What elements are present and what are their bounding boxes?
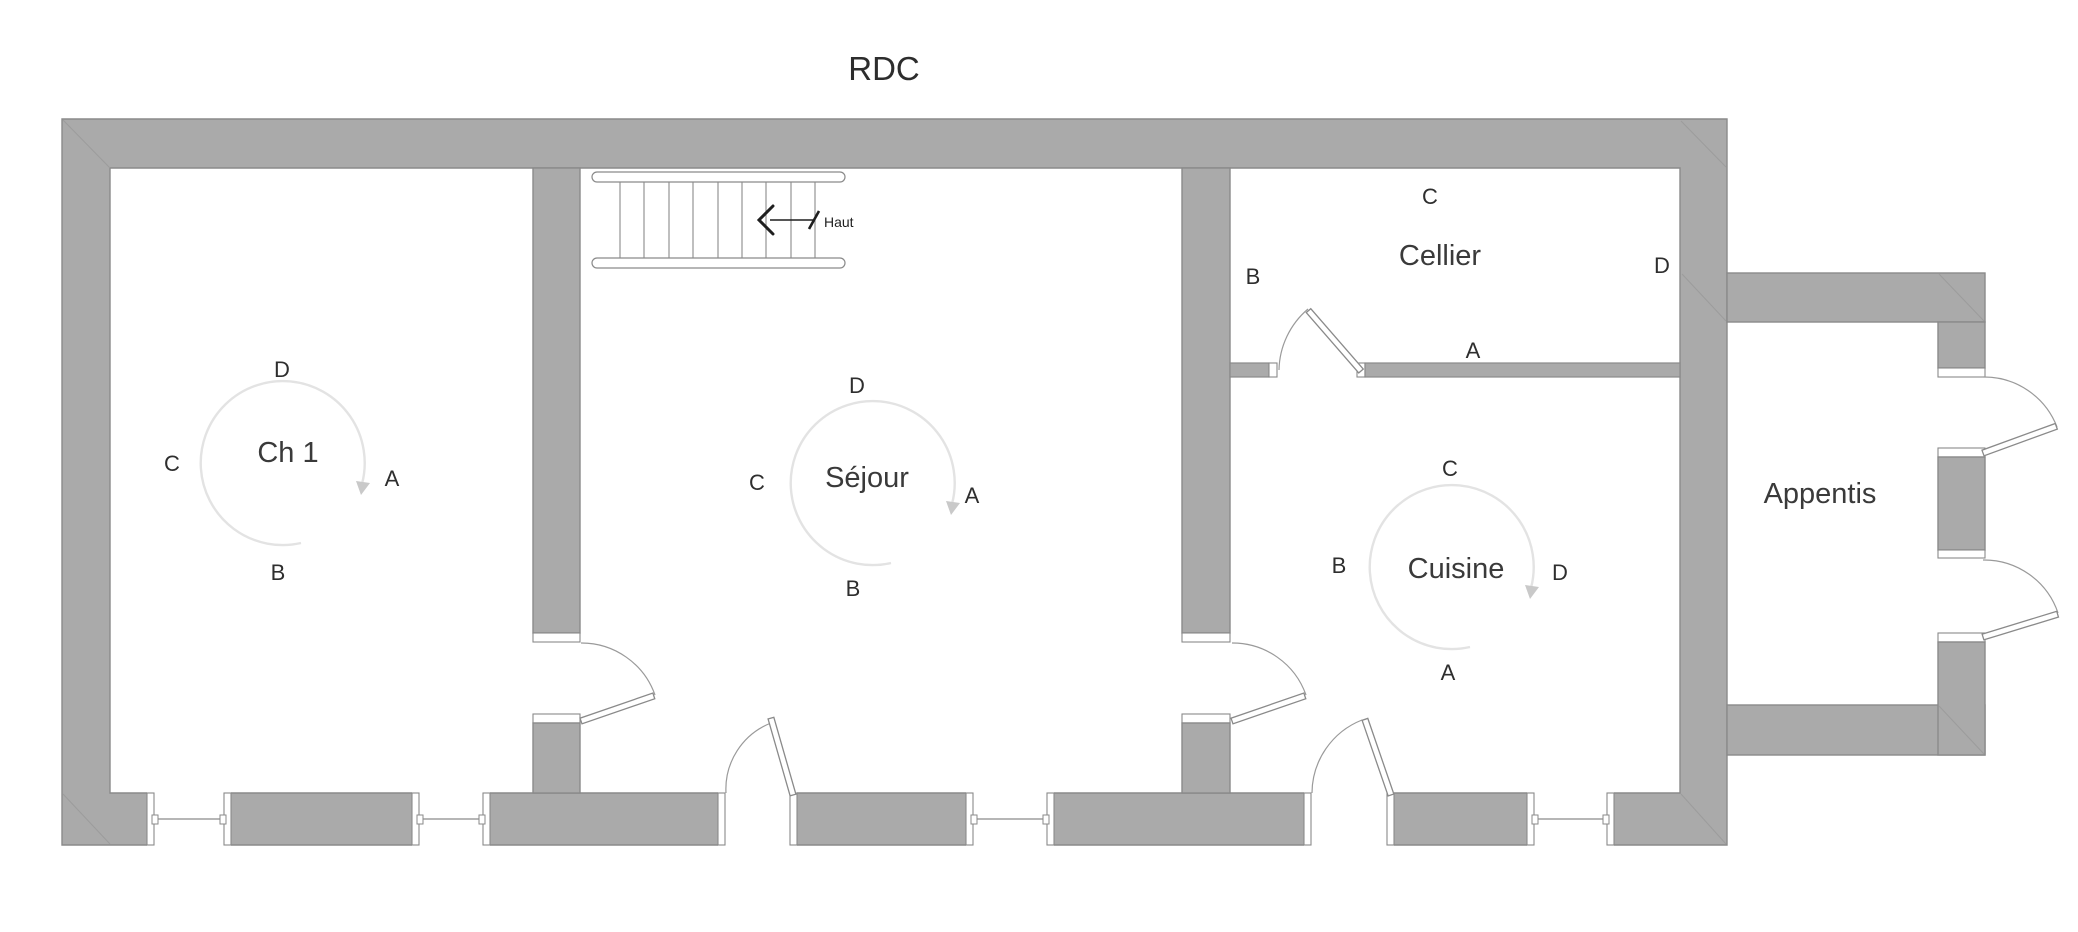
- window-tick: [971, 815, 977, 824]
- compass-letter-sejour-right: A: [965, 483, 980, 508]
- door-jamb: [533, 633, 580, 642]
- wall-segment: [1182, 168, 1230, 633]
- door-jamb: [1938, 368, 1985, 377]
- wall-sejour-cuisine: [1182, 168, 1230, 793]
- compass-letter-cellier-right: D: [1654, 253, 1670, 278]
- room-appentis-area: [1727, 322, 1938, 705]
- room-label-sejour: Séjour: [825, 462, 909, 494]
- compass-letter-ch1-top: D: [274, 357, 290, 382]
- floor-title: RDC: [848, 50, 920, 87]
- door-jamb: [533, 714, 580, 723]
- window-tick: [479, 815, 485, 824]
- door-opening: [718, 791, 797, 847]
- compass-letter-cellier-top: C: [1422, 184, 1438, 209]
- door-leaf: [1982, 424, 2057, 456]
- compass-letter-cellier-bottom: A: [1466, 338, 1481, 363]
- window-tick: [152, 815, 158, 824]
- compass-letter-ch1-right: A: [385, 466, 400, 491]
- window-tick: [1532, 815, 1538, 824]
- window-tick: [1043, 815, 1049, 824]
- window-3: [966, 791, 1054, 847]
- door-jamb: [790, 793, 797, 845]
- door-jamb: [1304, 793, 1311, 845]
- door-jamb: [1182, 633, 1230, 642]
- door-jamb: [1182, 714, 1230, 723]
- room-label-appentis: Appentis: [1764, 478, 1877, 510]
- door-appentis-south: [1982, 560, 2058, 640]
- compass-letter-ch1-bottom: B: [271, 560, 286, 585]
- compass-letter-cuisine-left: B: [1332, 553, 1347, 578]
- window-4: [1527, 791, 1614, 847]
- door-jamb: [1938, 550, 1985, 558]
- wall-ch1-sejour: [533, 168, 580, 793]
- appentis-top-wall: [1727, 273, 1985, 322]
- room-label-cellier: Cellier: [1399, 240, 1482, 272]
- floor-plan-page: Haut RDC Ch 1 D C A B Séjour D C A B Cel…: [0, 0, 2078, 932]
- window-tick: [1603, 815, 1609, 824]
- compass-letter-cellier-left: B: [1246, 264, 1261, 289]
- door-jamb: [1387, 793, 1394, 845]
- door-swing-arc: [1983, 560, 2058, 613]
- wall-segment: [1182, 723, 1230, 793]
- door-jamb: [718, 793, 725, 845]
- door-jamb: [1269, 363, 1277, 377]
- door-swing-arc: [1983, 377, 2057, 427]
- compass-letter-sejour-top: D: [849, 373, 865, 398]
- appentis-right-wall-segment: [1938, 457, 1985, 550]
- door-leaf: [1982, 611, 2058, 640]
- window-2: [412, 791, 490, 847]
- door-jamb: [1938, 633, 1985, 642]
- window-1: [147, 791, 231, 847]
- room-label-cuisine: Cuisine: [1408, 553, 1505, 585]
- floor-plan-drawing: Haut RDC Ch 1 D C A B Séjour D C A B Cel…: [0, 0, 2078, 932]
- wall-segment: [533, 723, 580, 793]
- door-jamb: [1938, 448, 1985, 457]
- compass-letter-ch1-left: C: [164, 451, 180, 476]
- compass-letter-cuisine-bottom: A: [1441, 660, 1456, 685]
- wall-cellier-cuisine: [1230, 363, 1680, 377]
- compass-letter-sejour-left: C: [749, 470, 765, 495]
- compass-letter-cuisine-right: D: [1552, 560, 1568, 585]
- wall-segment: [1230, 363, 1269, 377]
- room-label-ch1: Ch 1: [257, 437, 318, 469]
- appentis-right-wall-segment: [1938, 322, 1985, 368]
- wall-segment: [533, 168, 580, 633]
- compass-letter-sejour-bottom: B: [846, 576, 861, 601]
- window-tick: [220, 815, 226, 824]
- room-cuisine-area: [1230, 377, 1680, 793]
- door-opening: [1304, 791, 1394, 847]
- door-appentis-north: [1982, 377, 2057, 456]
- appentis-right-wall-segment: [1938, 642, 1985, 755]
- window-tick: [417, 815, 423, 824]
- compass-letter-cuisine-top: C: [1442, 456, 1458, 481]
- wall-segment: [1365, 363, 1680, 377]
- room-ch1-area: [110, 168, 533, 793]
